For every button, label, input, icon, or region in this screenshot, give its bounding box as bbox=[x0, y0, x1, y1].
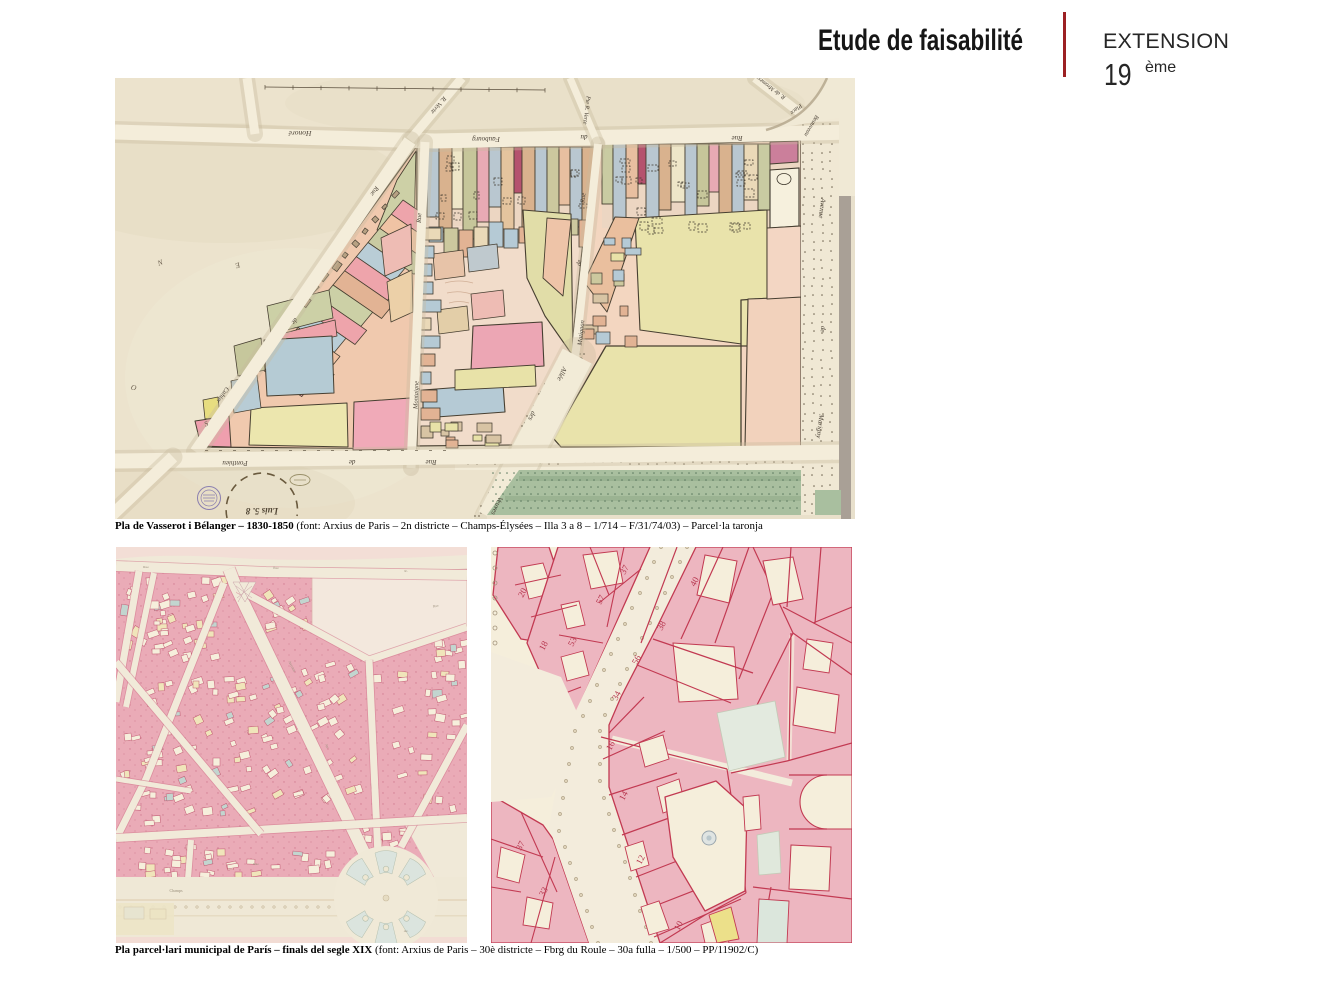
svg-text:Rue: Rue bbox=[253, 862, 259, 866]
svg-text:Honoré: Honoré bbox=[288, 129, 313, 138]
svg-text:Faubourg: Faubourg bbox=[472, 135, 501, 143]
svg-text:Rue: Rue bbox=[732, 134, 744, 142]
svg-text:Av.: Av. bbox=[404, 929, 409, 933]
svg-text:Luis 5. 8: Luis 5. 8 bbox=[245, 506, 279, 516]
svg-text:Rue: Rue bbox=[416, 213, 423, 224]
svg-text:Montaigne: Montaigne bbox=[412, 381, 420, 411]
svg-text:de: de bbox=[819, 325, 828, 333]
svg-text:Rue: Rue bbox=[273, 566, 279, 570]
svg-text:du: du bbox=[580, 133, 588, 141]
svg-text:Ponthieu: Ponthieu bbox=[222, 459, 249, 467]
svg-text:R.: R. bbox=[404, 569, 407, 573]
svg-text:Rue: Rue bbox=[426, 458, 438, 466]
svg-text:Champs: Champs bbox=[169, 888, 183, 893]
svg-text:Rue: Rue bbox=[579, 192, 587, 204]
svg-text:de: de bbox=[576, 259, 584, 266]
svg-text:Rue: Rue bbox=[143, 565, 149, 569]
svg-text:de: de bbox=[349, 458, 356, 466]
